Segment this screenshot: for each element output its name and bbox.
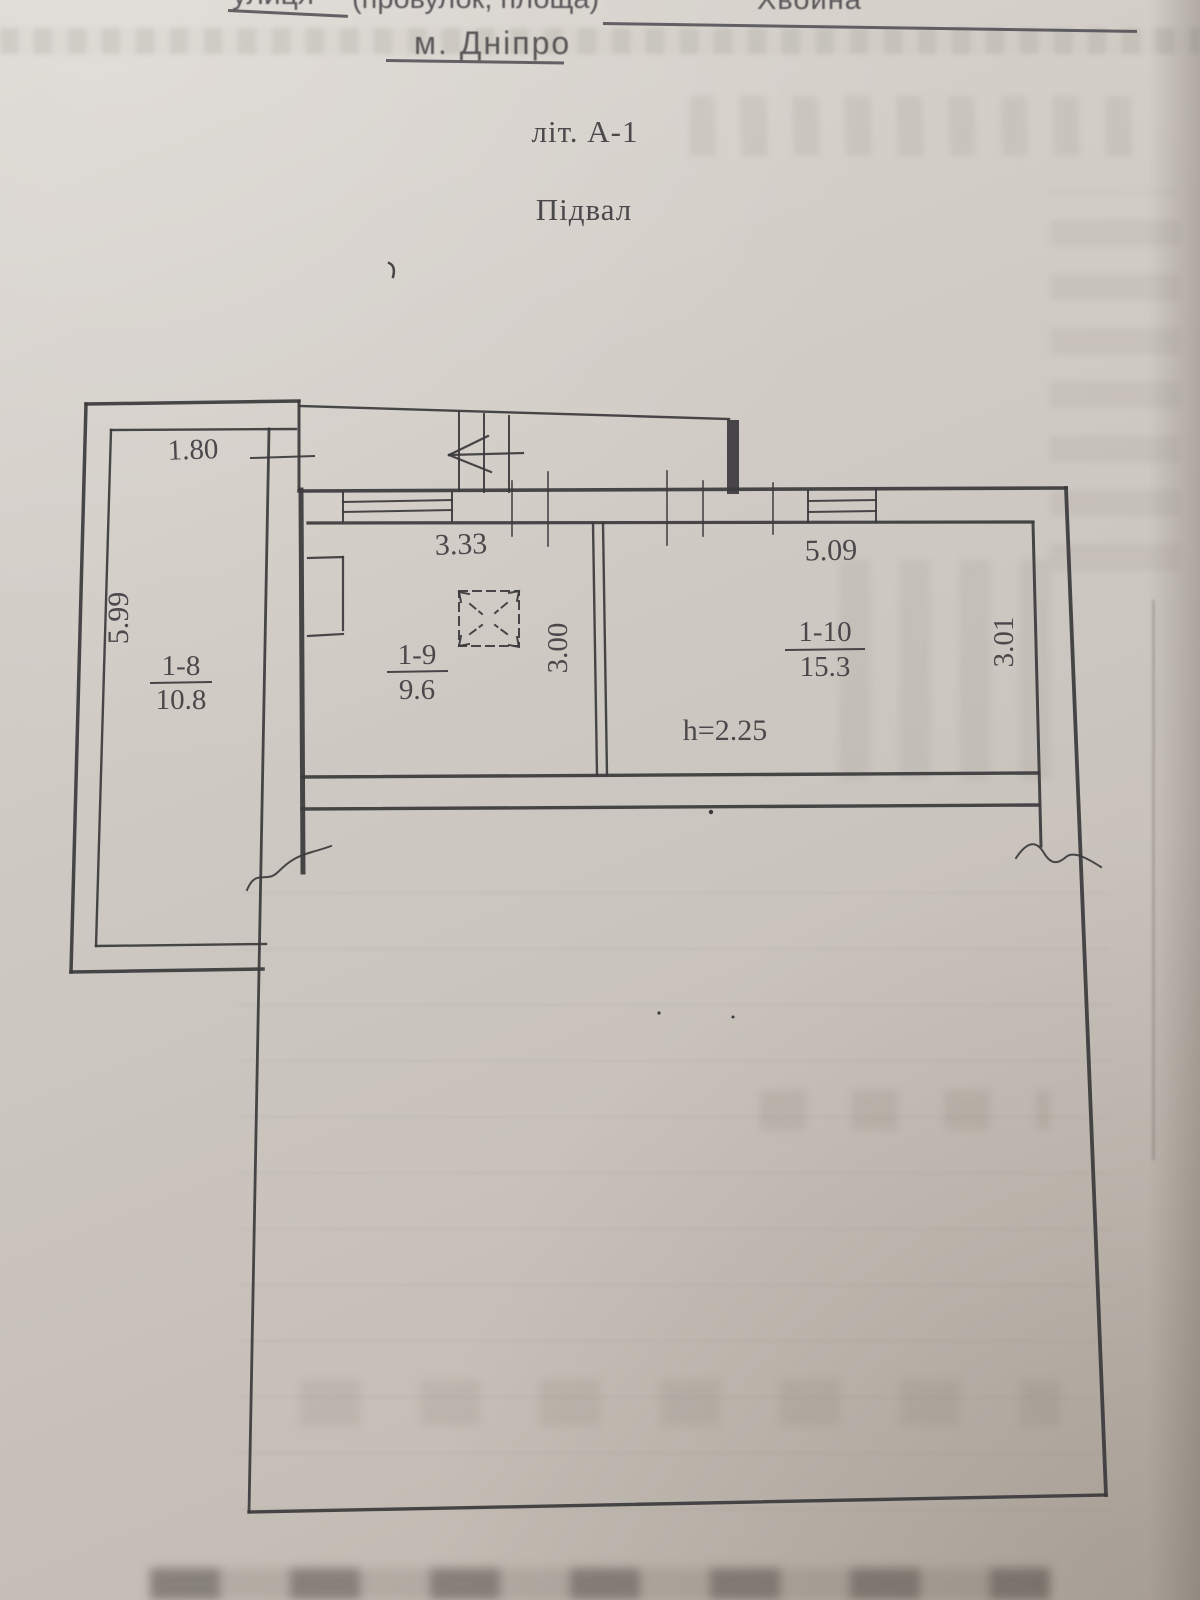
ink-speck <box>709 810 713 814</box>
room-label-1-9: 1-9 9.6 <box>388 639 447 706</box>
hatch-corner-arrow <box>459 592 469 602</box>
porch-pillar <box>727 420 739 494</box>
window-symbol-right <box>808 489 876 522</box>
building-letter: літ. А-1 <box>531 114 638 149</box>
room-number-underline <box>388 671 447 672</box>
partition-wall <box>593 523 607 775</box>
room-number: 1-8 <box>162 650 201 682</box>
stair-direction-arrow <box>449 436 523 472</box>
wall-niche <box>308 557 343 636</box>
room-number: 1-9 <box>398 639 437 671</box>
ink-speck <box>657 1011 660 1014</box>
room-number: 1-10 <box>798 616 851 648</box>
room-area: 10.8 <box>156 684 207 716</box>
dim-label-3-00: 3.00 <box>542 623 574 674</box>
dim-label-3-33: 3.33 <box>434 527 488 562</box>
scanned-floor-plan-page: улиця (провулок, площа) Хвойна м. Дніпро… <box>0 0 1200 1600</box>
room-area: 15.3 <box>800 651 851 683</box>
room-label-1-8: 1-8 10.8 <box>151 650 211 716</box>
ceiling-hatch-symbol <box>459 591 519 647</box>
ink-speck <box>732 1016 735 1019</box>
room-number-underline <box>151 682 211 683</box>
dim-label-1-80: 1.80 <box>167 433 219 467</box>
porch-stairs <box>299 406 739 494</box>
dim-label-5-99: 5.99 <box>102 592 135 645</box>
room-label-1-10: 1-10 15.3 <box>786 616 864 683</box>
dim-line-1-80 <box>251 456 314 458</box>
hatch-corner-arrow <box>459 636 469 646</box>
floor-title: Підвал <box>536 192 633 227</box>
dim-label-5-09: 5.09 <box>804 534 857 568</box>
dim-label-3-01: 3.01 <box>988 617 1020 668</box>
main-building-walls <box>249 429 1106 1512</box>
window-symbol-left <box>343 492 452 521</box>
room-number-underline <box>786 649 864 650</box>
hatch-corner-arrow <box>509 591 519 601</box>
height-note: h=2.25 <box>683 714 767 747</box>
floor-plan: літ. А-1 Підвал <box>0 0 1200 1600</box>
ink-speck <box>389 263 394 277</box>
room-area: 9.6 <box>399 674 435 706</box>
break-line-right <box>1016 844 1101 867</box>
